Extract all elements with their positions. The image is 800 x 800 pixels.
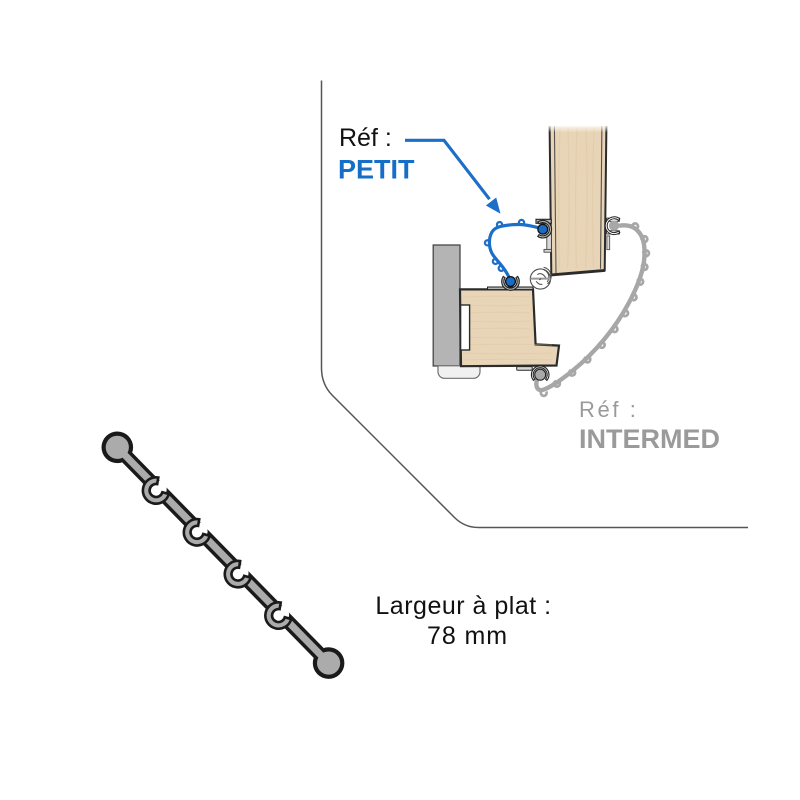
svg-text:Réf :: Réf : — [579, 397, 638, 422]
svg-text:78 mm: 78 mm — [427, 622, 508, 650]
svg-text:PETIT: PETIT — [338, 154, 415, 184]
svg-text:Réf :: Réf : — [339, 124, 392, 152]
svg-text:INTERMED: INTERMED — [579, 424, 720, 454]
svg-text:Largeur à plat :: Largeur à plat : — [375, 592, 551, 620]
